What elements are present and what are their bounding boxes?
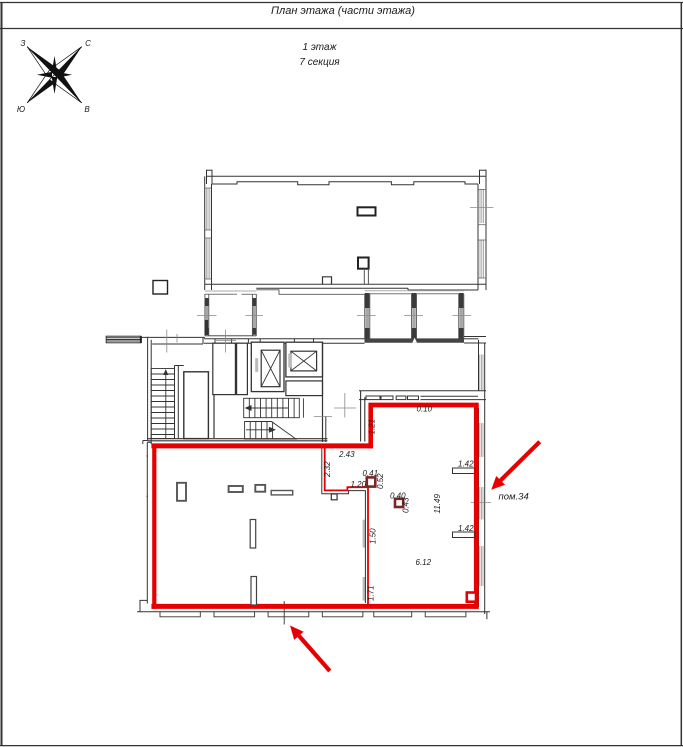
svg-text:0.52: 0.52 xyxy=(376,473,385,489)
svg-text:1.42: 1.42 xyxy=(458,460,474,469)
svg-text:6.12: 6.12 xyxy=(416,558,432,567)
svg-text:1 этаж: 1 этаж xyxy=(303,42,338,53)
svg-text:Ю: Ю xyxy=(17,105,25,114)
svg-text:С: С xyxy=(85,39,91,48)
svg-text:1.20: 1.20 xyxy=(351,480,367,489)
svg-text:2.32: 2.32 xyxy=(323,461,332,478)
svg-text:1.71: 1.71 xyxy=(367,585,376,601)
svg-text:7 секция: 7 секция xyxy=(299,57,340,68)
svg-text:1.21: 1.21 xyxy=(367,419,376,435)
svg-text:11.49: 11.49 xyxy=(433,494,442,514)
svg-text:З: З xyxy=(21,39,26,48)
svg-text:2.43: 2.43 xyxy=(338,450,355,459)
svg-text:В: В xyxy=(84,105,90,114)
svg-text:0.43: 0.43 xyxy=(402,497,411,513)
svg-text:пом.34: пом.34 xyxy=(499,492,529,503)
svg-text:0.10: 0.10 xyxy=(417,405,433,414)
svg-text:1.50: 1.50 xyxy=(369,528,378,544)
svg-text:План этажа (части этажа): План этажа (части этажа) xyxy=(271,5,415,17)
